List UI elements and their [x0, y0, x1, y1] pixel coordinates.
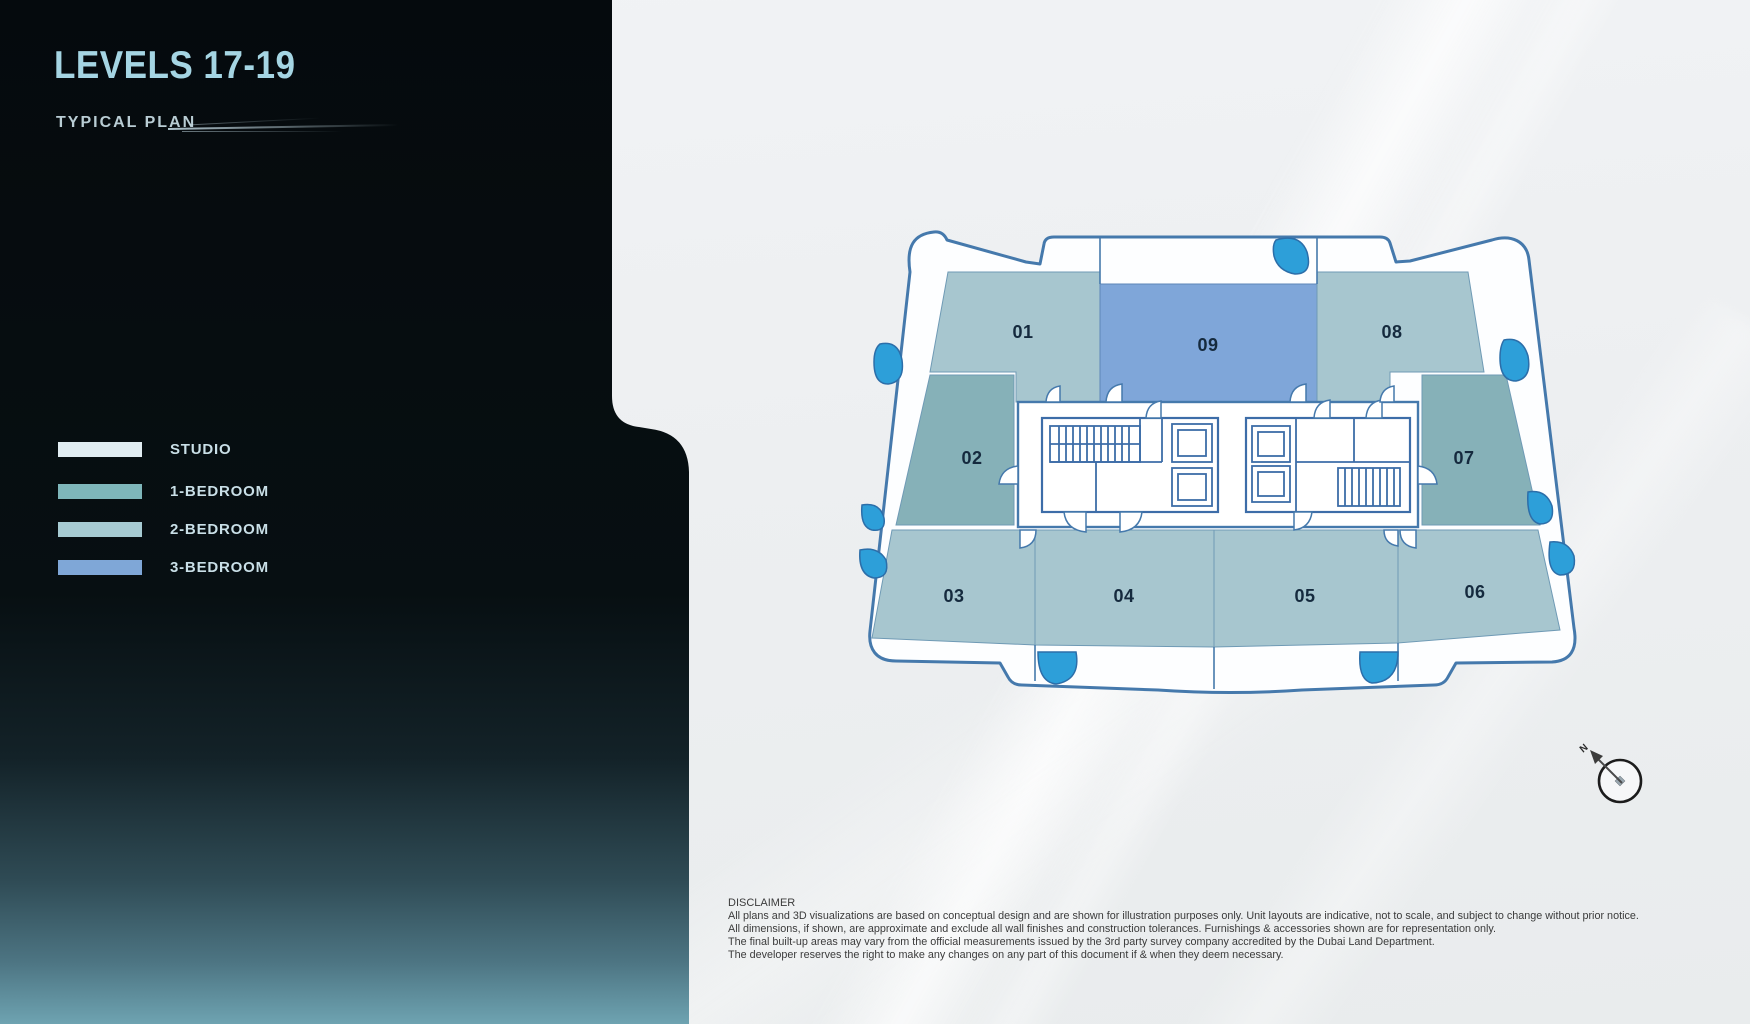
unit-label-01: 01: [1012, 322, 1033, 342]
legend-swatch-2bedroom: [58, 522, 142, 537]
unit-label-06: 06: [1464, 582, 1485, 602]
unit-label-05: 05: [1294, 586, 1315, 606]
balcony-pod: [1549, 542, 1574, 575]
legend-label-2bedroom: 2-BEDROOM: [170, 521, 269, 538]
balcony-pod: [862, 505, 885, 531]
legend-label-3bedroom: 3-BEDROOM: [170, 559, 269, 576]
legend-swatch-1bedroom: [58, 484, 142, 499]
balcony-pod: [874, 343, 902, 384]
page-subtitle-row: TYPICAL PLAN: [56, 114, 416, 140]
legend-label-1bedroom: 1-BEDROOM: [170, 483, 269, 500]
unit-label-08: 08: [1381, 322, 1402, 342]
legend-row-2bedroom: 2-BEDROOM: [58, 521, 269, 538]
disclaimer-line: All plans and 3D visualizations are base…: [728, 910, 1678, 923]
floor-plan-svg: 01 09 08 02 07 03 04 05 06 N: [850, 200, 1670, 820]
legend-swatch-studio: [58, 442, 142, 457]
unit-label-04: 04: [1113, 586, 1134, 606]
legend-label-studio: STUDIO: [170, 441, 231, 458]
unit-type-legend: STUDIO 1-BEDROOM 2-BEDROOM 3-BEDROOM: [58, 441, 269, 597]
disclaimer-line: The final built-up areas may vary from t…: [728, 936, 1678, 949]
unit-label-02: 02: [961, 448, 982, 468]
disclaimer: DISCLAIMER All plans and 3D visualizatio…: [728, 897, 1678, 962]
disclaimer-line: The developer reserves the right to make…: [728, 949, 1678, 962]
disclaimer-line: All dimensions, if shown, are approximat…: [728, 923, 1678, 936]
legend-swatch-3bedroom: [58, 560, 142, 575]
swoosh-line: [168, 124, 398, 130]
legend-row-1bedroom: 1-BEDROOM: [58, 483, 269, 500]
unit-label-09: 09: [1197, 335, 1218, 355]
compass: N: [1578, 742, 1641, 802]
core-left-block: [1042, 418, 1218, 512]
swoosh-line: [190, 118, 320, 126]
legend-row-studio: STUDIO: [58, 441, 269, 458]
core-right-block: [1246, 418, 1410, 512]
floor-plan: 01 09 08 02 07 03 04 05 06 N: [850, 200, 1670, 820]
unit-label-03: 03: [943, 586, 964, 606]
legend-row-3bedroom: 3-BEDROOM: [58, 559, 269, 576]
page-title: LEVELS 17-19: [54, 44, 295, 88]
compass-north-label: N: [1578, 742, 1591, 755]
disclaimer-title: DISCLAIMER: [728, 897, 1678, 909]
swoosh-line: [182, 131, 342, 132]
unit-label-07: 07: [1453, 448, 1474, 468]
page-subtitle: TYPICAL PLAN: [56, 114, 196, 132]
